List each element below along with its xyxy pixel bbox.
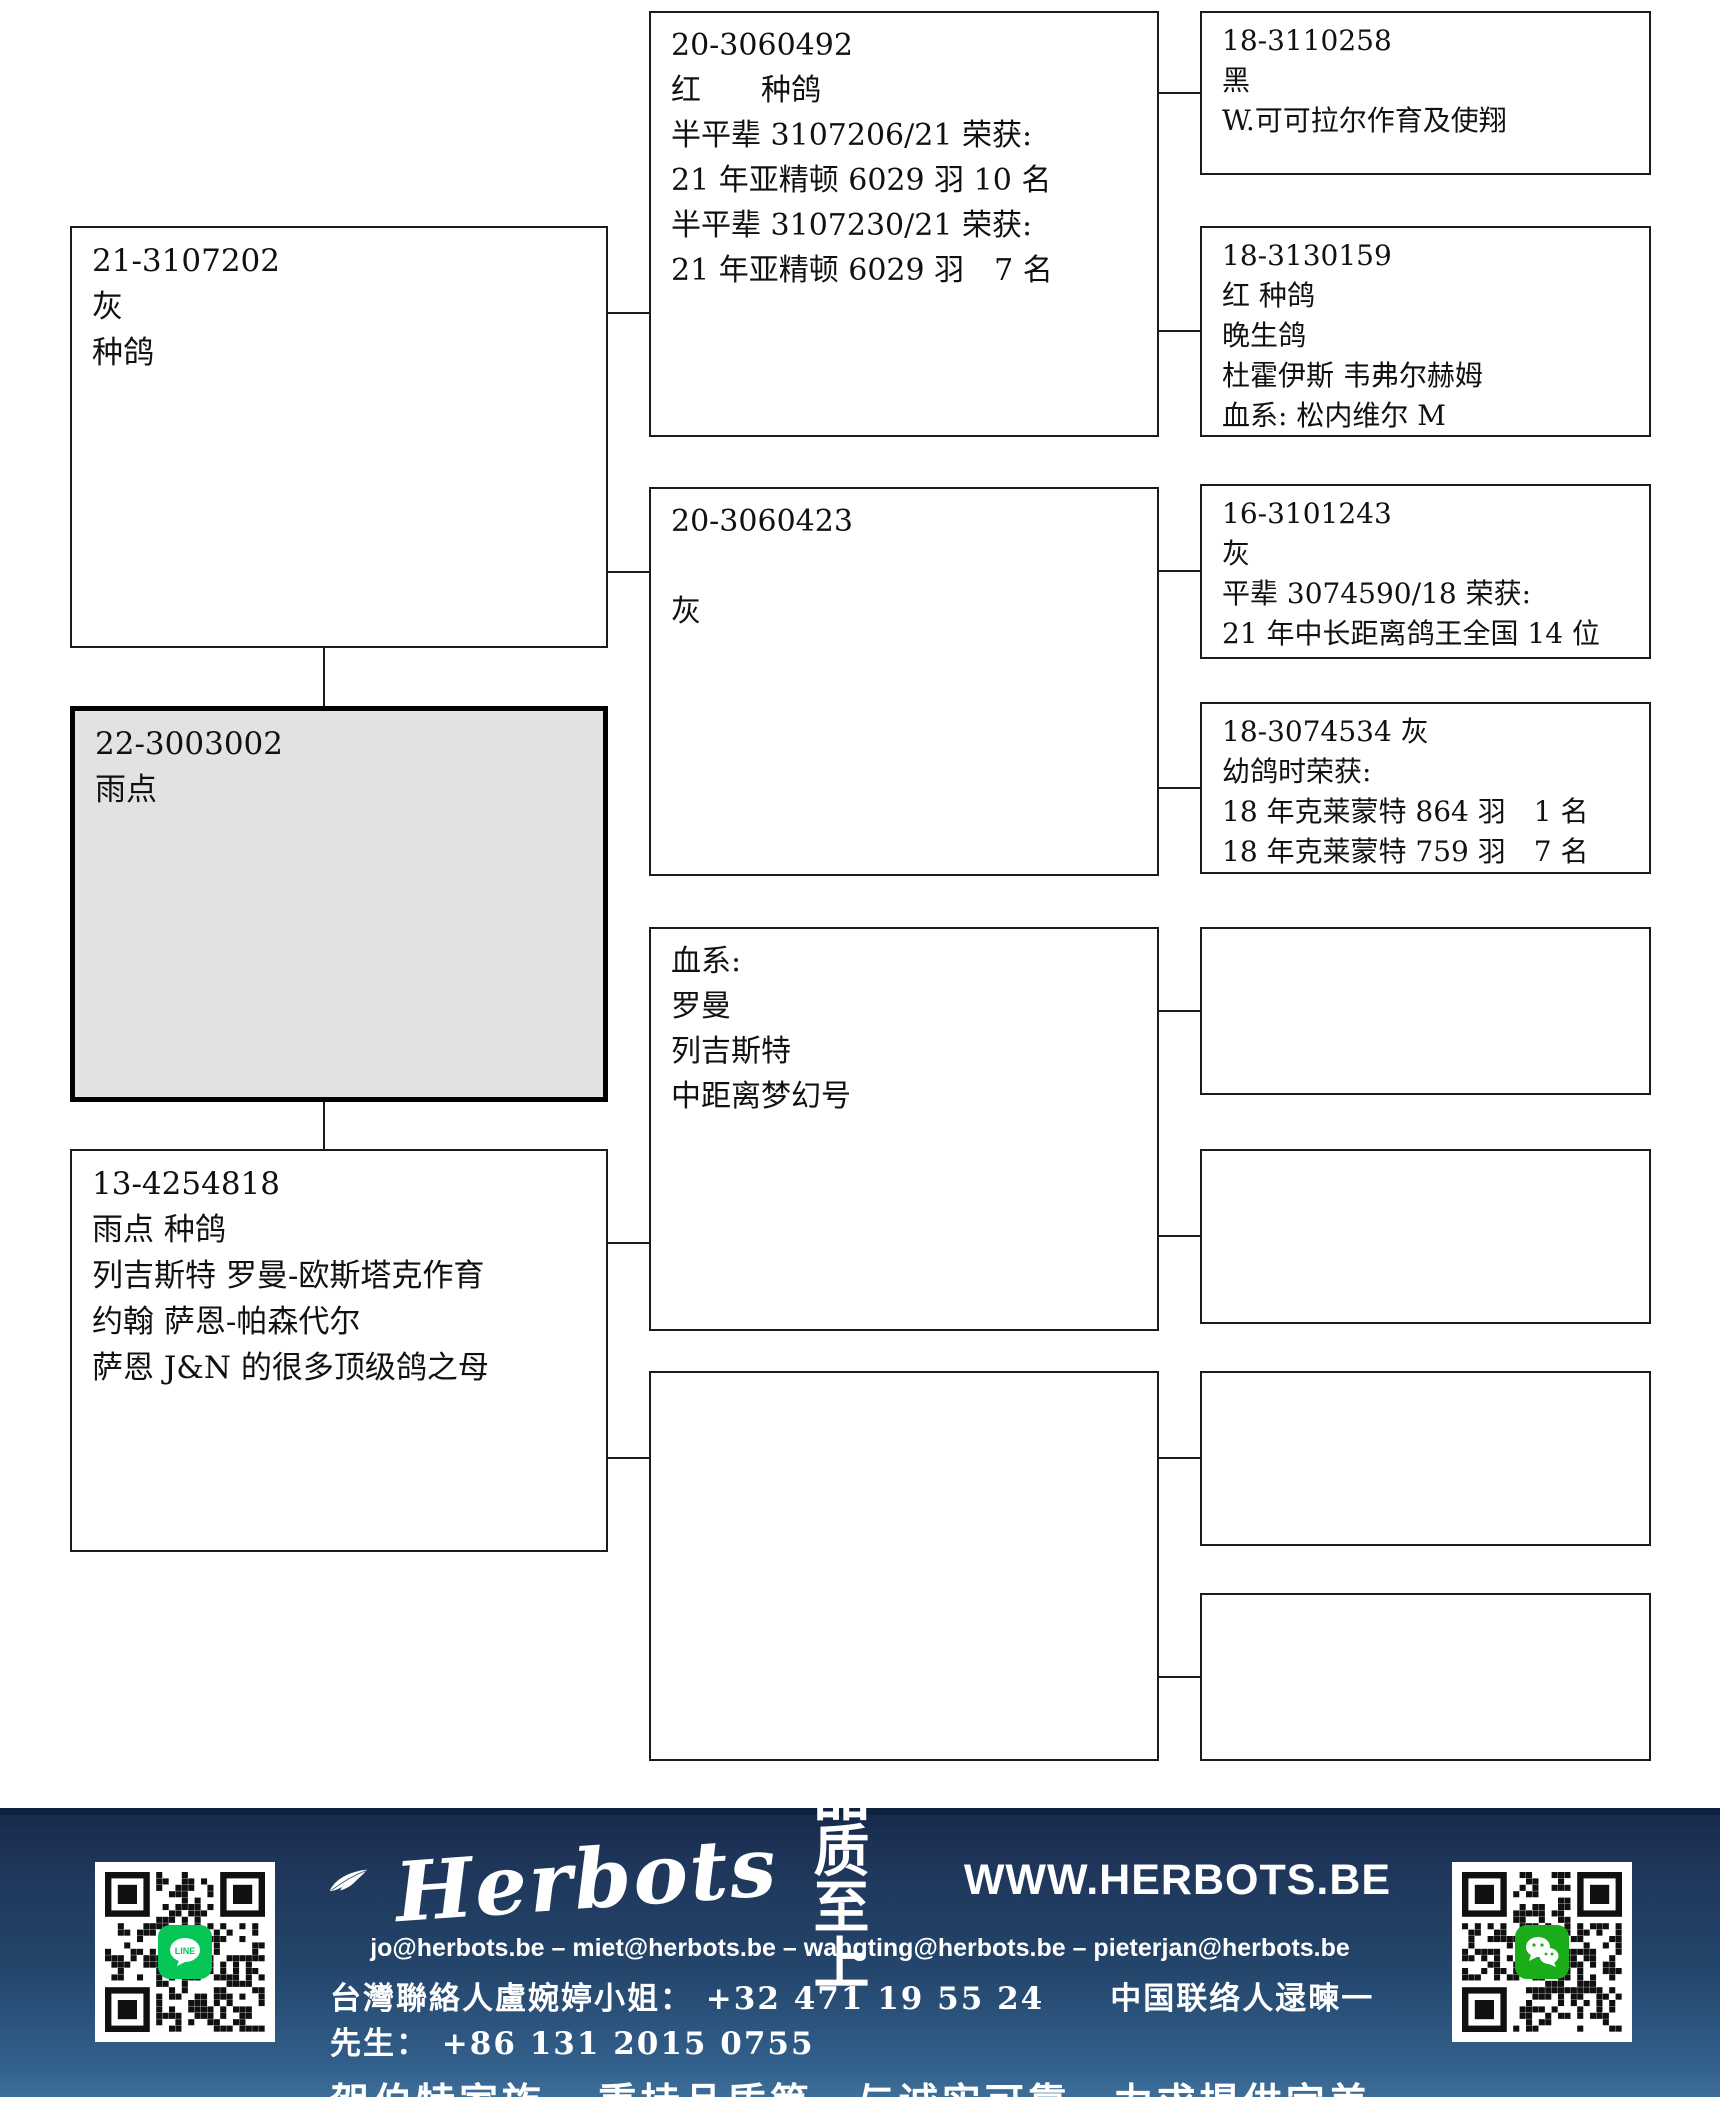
- svg-text:LINE: LINE: [175, 1946, 196, 1956]
- connector-line: [1159, 92, 1200, 94]
- connector-line: [1159, 1235, 1200, 1237]
- pedigree-box-mother: 13-4254818雨点 种鸽列吉斯特 罗曼-欧斯塔克作育约翰 萨恩-帕森代尔萨…: [70, 1149, 608, 1552]
- connector-line: [608, 1457, 649, 1459]
- pedigree-text-line: 平辈 3074590/18 荣获:: [1222, 574, 1635, 614]
- pedigree-text-line: 血系:: [671, 939, 1143, 984]
- pedigree-text-line: 罗曼: [671, 984, 1143, 1029]
- pedigree-text-line: 18-3130159: [1222, 236, 1635, 276]
- pedigree-text-line: 约翰 萨恩-帕森代尔: [92, 1299, 592, 1345]
- pedigree-box-great-grandparent-6: [1200, 1149, 1651, 1324]
- pedigree-text-line: [671, 544, 1143, 589]
- connector-line: [1159, 330, 1200, 332]
- pedigree-text-line: 13-4254818: [92, 1161, 592, 1207]
- pedigree-text-line: 22-3003002: [95, 721, 589, 767]
- website-url: WWW.HERBOTS.BE: [964, 1859, 1391, 1902]
- pedigree-text-line: 雨点: [95, 767, 589, 813]
- footer-content: Herbots 品质至上 WWW.HERBOTS.BE jo@herbots.b…: [330, 1828, 1390, 2088]
- connector-line: [1159, 787, 1200, 789]
- pedigree-text-line: 20-3060492: [671, 23, 1143, 68]
- pedigree-text-line: 中距离梦幻号: [671, 1074, 1143, 1119]
- pedigree-text-line: 20-3060423: [671, 499, 1143, 544]
- pedigree-page: 21-3107202灰种鸽 22-3003002雨点 13-4254818雨点 …: [0, 0, 1720, 2111]
- pedigree-box-father: 21-3107202灰种鸽: [70, 226, 608, 648]
- pedigree-box-paternal-grandmother: 20-3060423 灰: [649, 487, 1159, 876]
- pedigree-box-paternal-grandfather: 20-3060492红 种鸽半平辈 3107206/21 荣获:21 年亚精顿 …: [649, 11, 1159, 437]
- pedigree-box-great-grandparent-4: 18-3074534 灰幼鸽时荣获:18 年克莱蒙特 864 羽 1 名18 年…: [1200, 702, 1651, 874]
- pedigree-text-line: 灰: [92, 284, 592, 330]
- pedigree-text-line: 幼鸽时荣获:: [1222, 752, 1635, 792]
- pedigree-text-line: 半平辈 3107230/21 荣获:: [671, 203, 1143, 248]
- pedigree-box-maternal-grandmother: [649, 1371, 1159, 1761]
- pedigree-box-great-grandparent-5: [1200, 927, 1651, 1095]
- pedigree-text-line: 18-3074534 灰: [1222, 712, 1635, 752]
- connector-line: [1159, 1676, 1200, 1678]
- pedigree-text-line: 红 种鸽: [1222, 276, 1635, 316]
- pedigree-text-line: 晚生鸽: [1222, 316, 1635, 356]
- footer: LINE Herbots: [0, 1808, 1720, 2097]
- pedigree-text-line: 种鸽: [92, 330, 592, 376]
- connector-line: [608, 1242, 649, 1244]
- pedigree-text-line: 红 种鸽: [671, 68, 1143, 113]
- wechat-icon: [1515, 1925, 1569, 1979]
- pedigree-text-line: 雨点 种鸽: [92, 1207, 592, 1253]
- pedigree-box-great-grandparent-2: 18-3130159红 种鸽晚生鸽杜霍伊斯 韦弗尔赫姆血系: 松内维尔 M: [1200, 226, 1651, 437]
- pedigree-box-great-grandparent-3: 16-3101243灰平辈 3074590/18 荣获:21 年中长距离鸽王全国…: [1200, 484, 1651, 659]
- pedigree-text-line: 18 年克莱蒙特 759 羽 7 名: [1222, 832, 1635, 872]
- connector-line: [1159, 570, 1200, 572]
- pedigree-box-great-grandparent-7: [1200, 1371, 1651, 1546]
- footer-slogan: 贺伯特家族...秉持品质第一与诚实可靠，力求提供完美的服务！: [330, 2072, 1390, 2111]
- pedigree-text-line: 列吉斯特: [671, 1029, 1143, 1074]
- connector-line: [323, 1102, 325, 1149]
- line-icon: LINE: [158, 1925, 212, 1979]
- phone-contacts: 台灣聯絡人盧婉婷小姐： +32 471 19 55 24 中国联络人逯暕一先生：…: [330, 1973, 1390, 2063]
- pedigree-text-line: 21 年亚精顿 6029 羽 10 名: [671, 158, 1143, 203]
- pedigree-text-line: 萨恩 J&N 的很多顶级鸽之母: [92, 1345, 592, 1391]
- connector-line: [1159, 1457, 1200, 1459]
- email-contacts: jo@herbots.be – miet@herbots.be – wangti…: [370, 1934, 1350, 1963]
- pedigree-text-line: 黑: [1222, 61, 1635, 101]
- pedigree-box-great-grandparent-1: 18-3110258黑W.可可拉尔作育及使翔: [1200, 11, 1651, 175]
- pedigree-box-great-grandparent-8: [1200, 1593, 1651, 1761]
- brand-name: Herbots: [392, 1826, 780, 1935]
- feather-icon: [329, 1851, 369, 1909]
- connector-line: [323, 648, 325, 706]
- herbots-logo: Herbots 品质至上 WWW.HERBOTS.BE: [329, 1828, 1391, 1932]
- pedigree-box-maternal-grandfather: 血系:罗曼列吉斯特中距离梦幻号: [649, 927, 1159, 1331]
- pedigree-box-subject: 22-3003002雨点: [70, 706, 608, 1102]
- pedigree-text-line: 21 年亚精顿 6029 羽 7 名: [671, 248, 1143, 293]
- pedigree-text-line: W.可可拉尔作育及使翔: [1222, 101, 1635, 141]
- pedigree-text-line: 21-3107202: [92, 238, 592, 284]
- connector-line: [1159, 1010, 1200, 1012]
- pedigree-text-line: 18 年克莱蒙特 864 羽 1 名: [1222, 792, 1635, 832]
- connector-line: [608, 312, 649, 314]
- pedigree-text-line: 半平辈 3107206/21 荣获:: [671, 113, 1143, 158]
- connector-line: [608, 571, 649, 573]
- pedigree-text-line: 21 年中长距离鸽王全国 14 位: [1222, 614, 1635, 654]
- pedigree-text-line: 列吉斯特 罗曼-欧斯塔克作育: [92, 1253, 592, 1299]
- pedigree-text-line: 灰: [1222, 534, 1635, 574]
- pedigree-text-line: 灰: [671, 589, 1143, 634]
- pedigree-text-line: 杜霍伊斯 韦弗尔赫姆: [1222, 356, 1635, 396]
- pedigree-text-line: 16-3101243: [1222, 494, 1635, 534]
- pedigree-text-line: 血系: 松内维尔 M: [1222, 396, 1635, 436]
- pedigree-text-line: 18-3110258: [1222, 21, 1635, 61]
